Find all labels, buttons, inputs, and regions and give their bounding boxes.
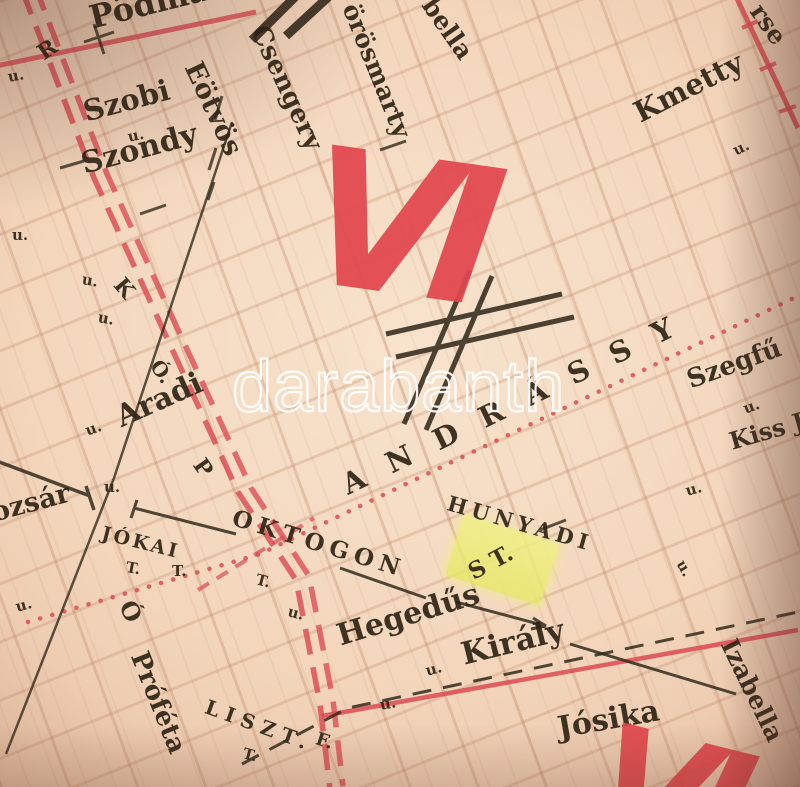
- utca-abbrev-mark: u.: [12, 228, 28, 243]
- district-vi-numeral: VI: [297, 140, 490, 315]
- ter-abbrev-mark: T.: [125, 560, 142, 577]
- ter-abbrev-mark: T.: [172, 564, 186, 579]
- jokai-ter-line: [131, 500, 236, 534]
- map-photo: Pödma Szobi Szondy Eötvös Csengery örösm…: [0, 0, 800, 787]
- utca-abbrev-mark: u.: [104, 480, 120, 495]
- utca-abbrev-mark: u.: [7, 67, 26, 85]
- utca-abbrev-mark: u.: [379, 695, 398, 713]
- utca-abbrev-mark: u.: [81, 272, 100, 290]
- kiraly-crossing-line: [570, 644, 736, 694]
- utca-abbrev-mark: u.: [126, 127, 145, 145]
- utca-abbrev-mark: u.: [97, 310, 116, 328]
- utca-abbrev-mark: u.: [424, 660, 443, 679]
- utca-abbrev-mark: u.: [14, 596, 33, 615]
- railway-diagonal-line: [6, 122, 232, 754]
- darabanth-watermark: darabanth: [232, 346, 565, 428]
- utca-abbrev-mark: u.: [684, 480, 703, 499]
